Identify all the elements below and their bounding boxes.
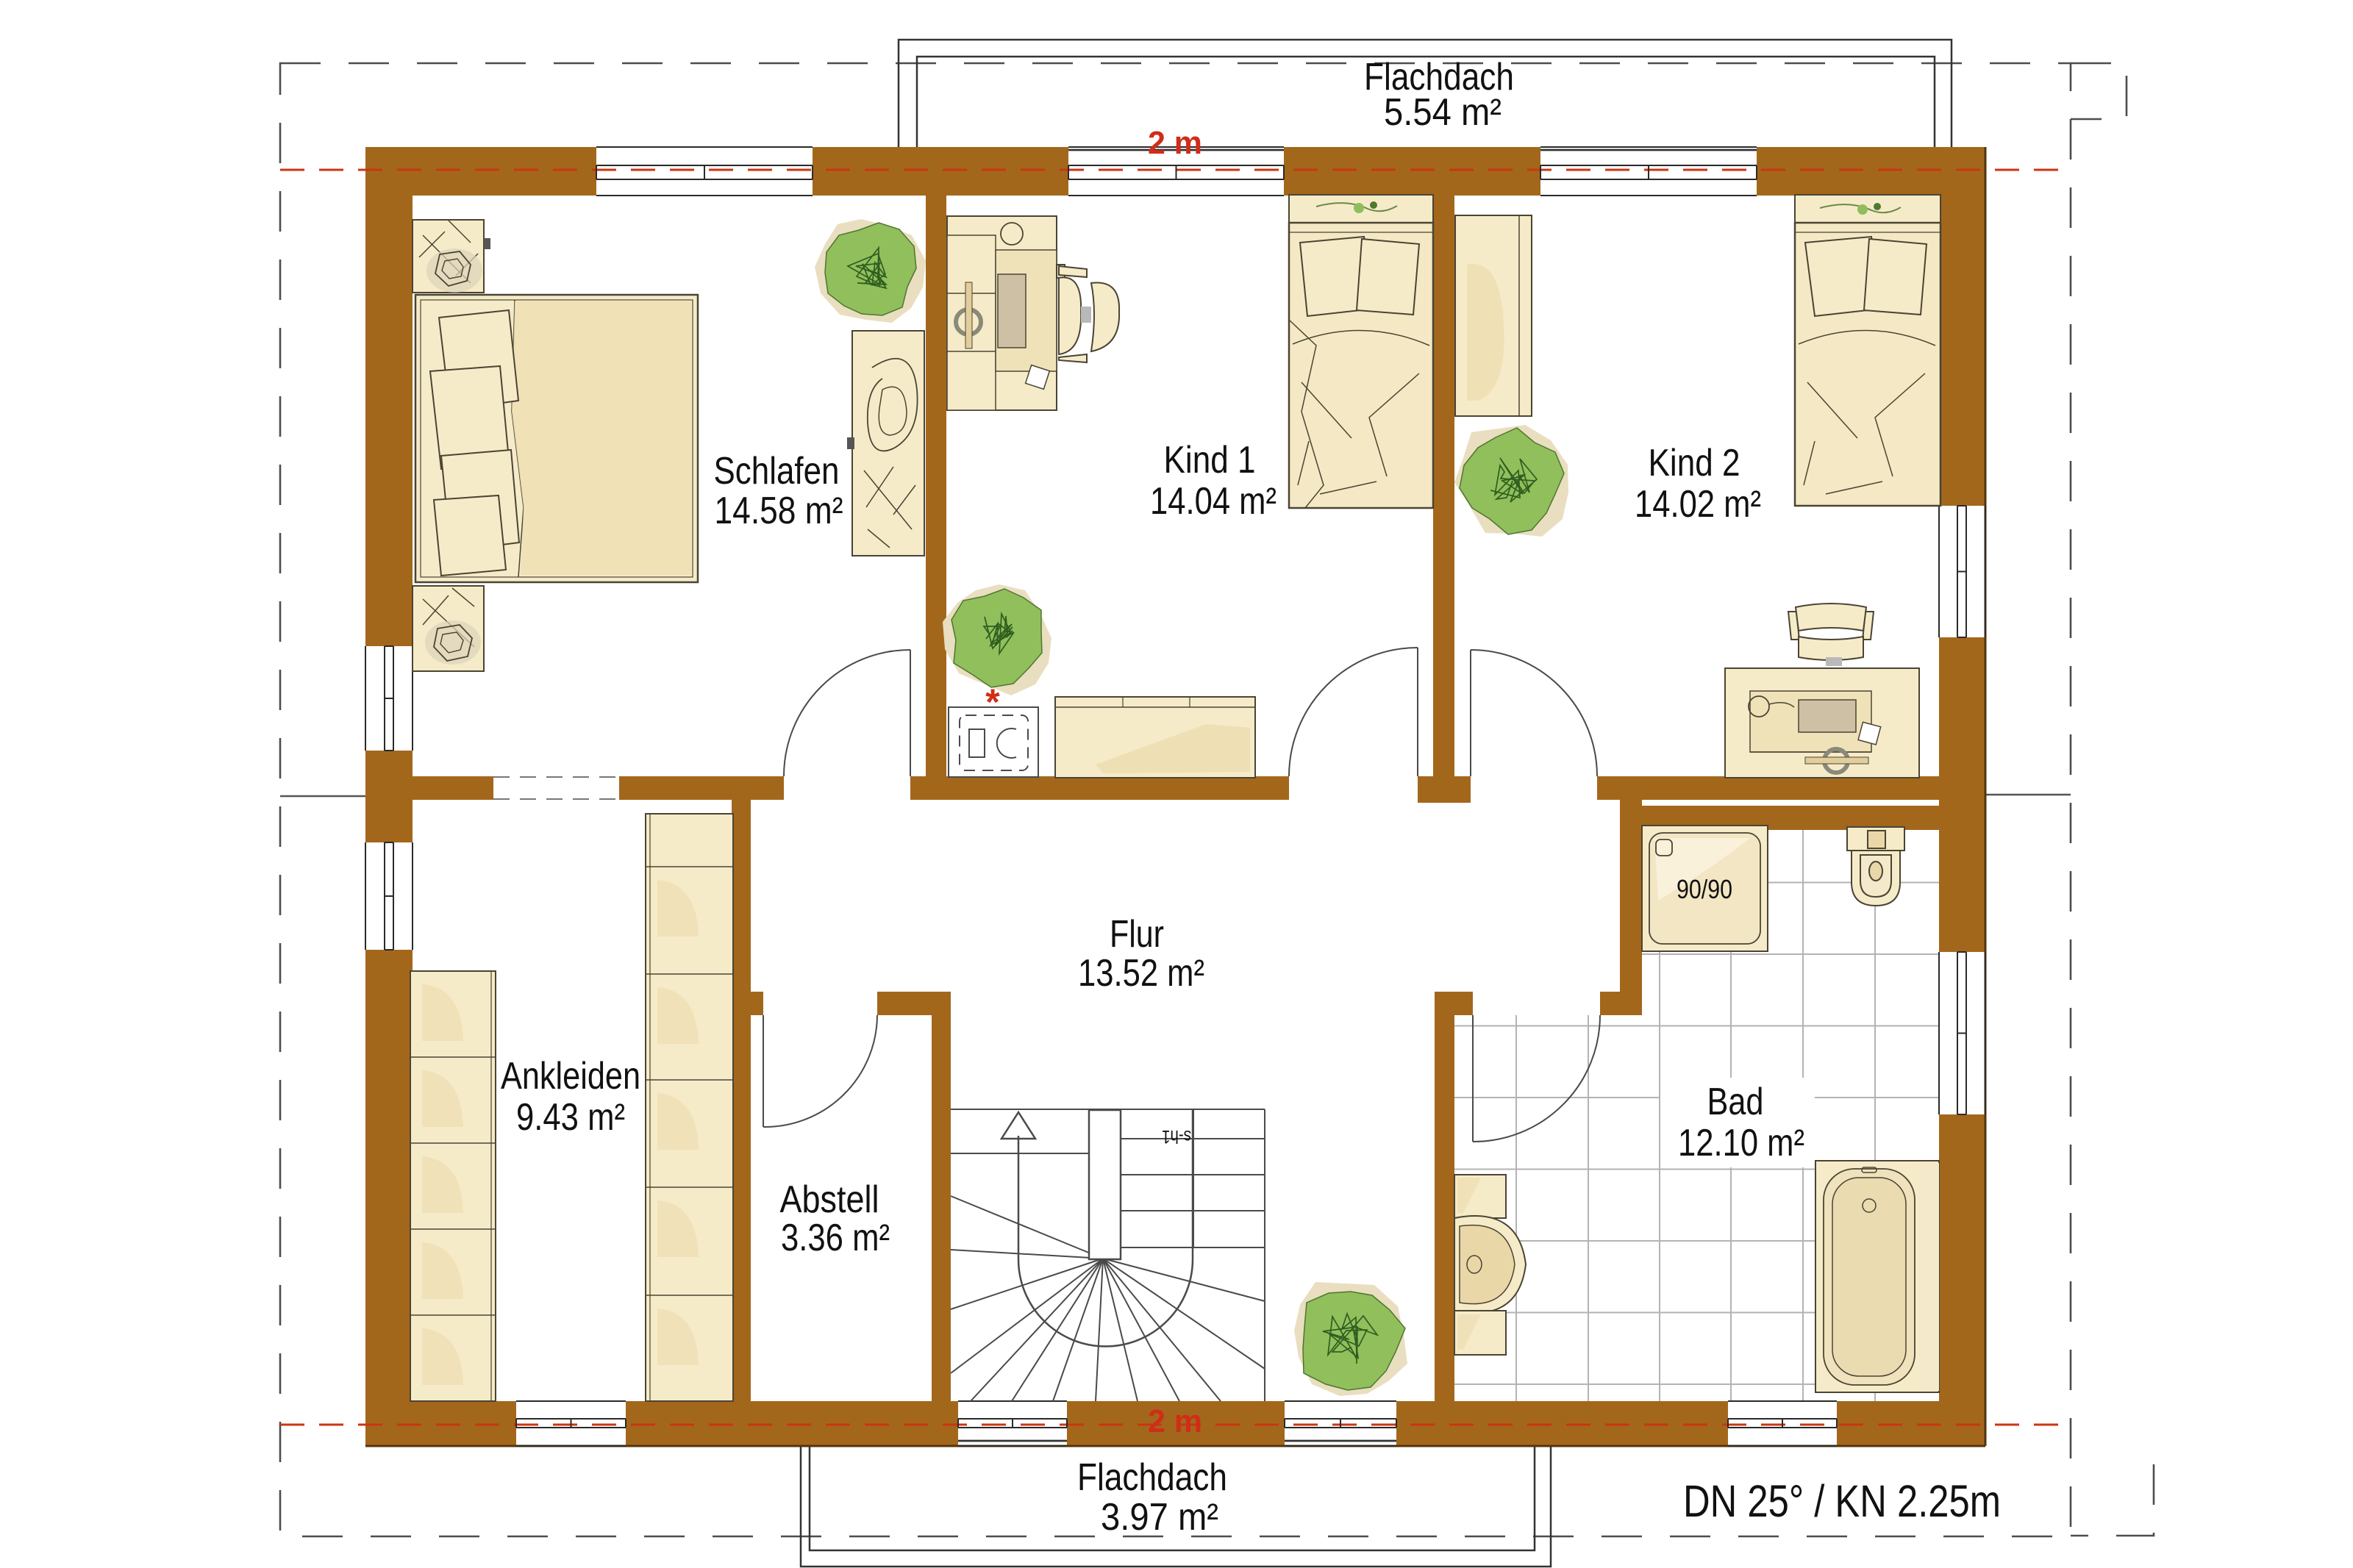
svg-text:Flur: Flur [1110,913,1164,956]
svg-text:Bad: Bad [1707,1081,1764,1123]
svg-text:Ankleiden: Ankleiden [501,1055,640,1098]
svg-text:12.10 m²: 12.10 m² [1678,1122,1804,1164]
svg-text:90/90: 90/90 [1677,874,1732,904]
svg-text:9.43 m²: 9.43 m² [516,1096,625,1139]
svg-text:3.97 m²: 3.97 m² [1101,1496,1218,1539]
svg-text:Flachdach: Flachdach [1077,1456,1227,1499]
svg-text:2 m: 2 m [1148,125,1202,161]
svg-text:s-h1: s-h1 [1162,1126,1191,1147]
svg-text:Kind 2: Kind 2 [1649,442,1740,484]
svg-text:Kind 1: Kind 1 [1164,439,1256,482]
svg-text:DN 25° / KN 2.25m: DN 25° / KN 2.25m [1683,1476,2001,1526]
svg-text:3.36 m²: 3.36 m² [781,1217,890,1259]
svg-text:13.52 m²: 13.52 m² [1078,952,1204,995]
svg-text:14.04 m²: 14.04 m² [1150,480,1277,523]
svg-text:Schlafen: Schlafen [714,450,840,493]
svg-text:2 m: 2 m [1148,1403,1202,1439]
svg-text:Abstell: Abstell [780,1178,879,1221]
svg-text:14.58 m²: 14.58 m² [715,490,843,532]
svg-text:14.02 m²: 14.02 m² [1635,483,1761,526]
svg-text:5.54 m²: 5.54 m² [1384,91,1502,134]
